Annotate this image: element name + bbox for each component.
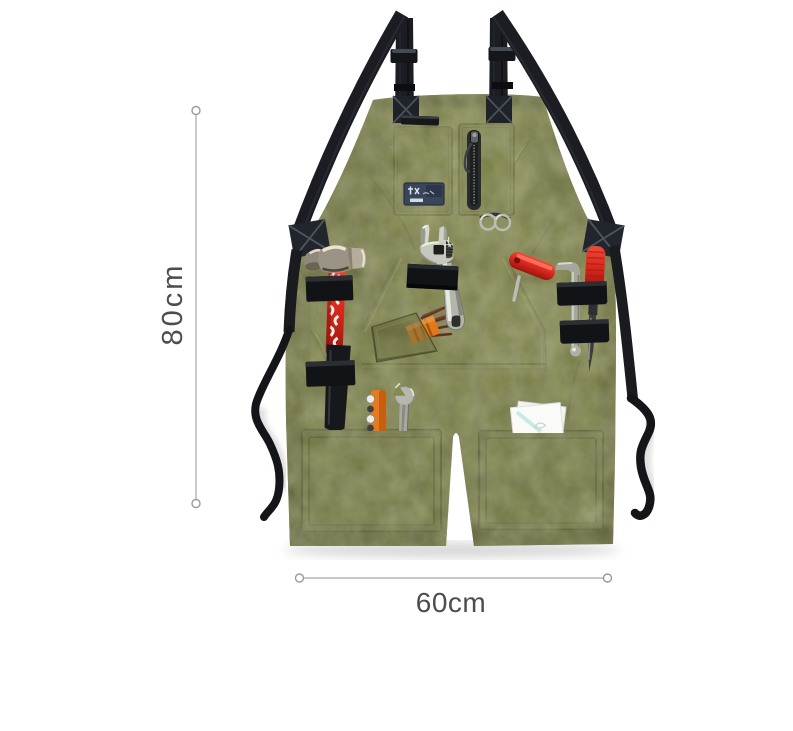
- svg-text:60cm: 60cm: [416, 587, 486, 618]
- svg-text:80cm: 80cm: [157, 263, 189, 346]
